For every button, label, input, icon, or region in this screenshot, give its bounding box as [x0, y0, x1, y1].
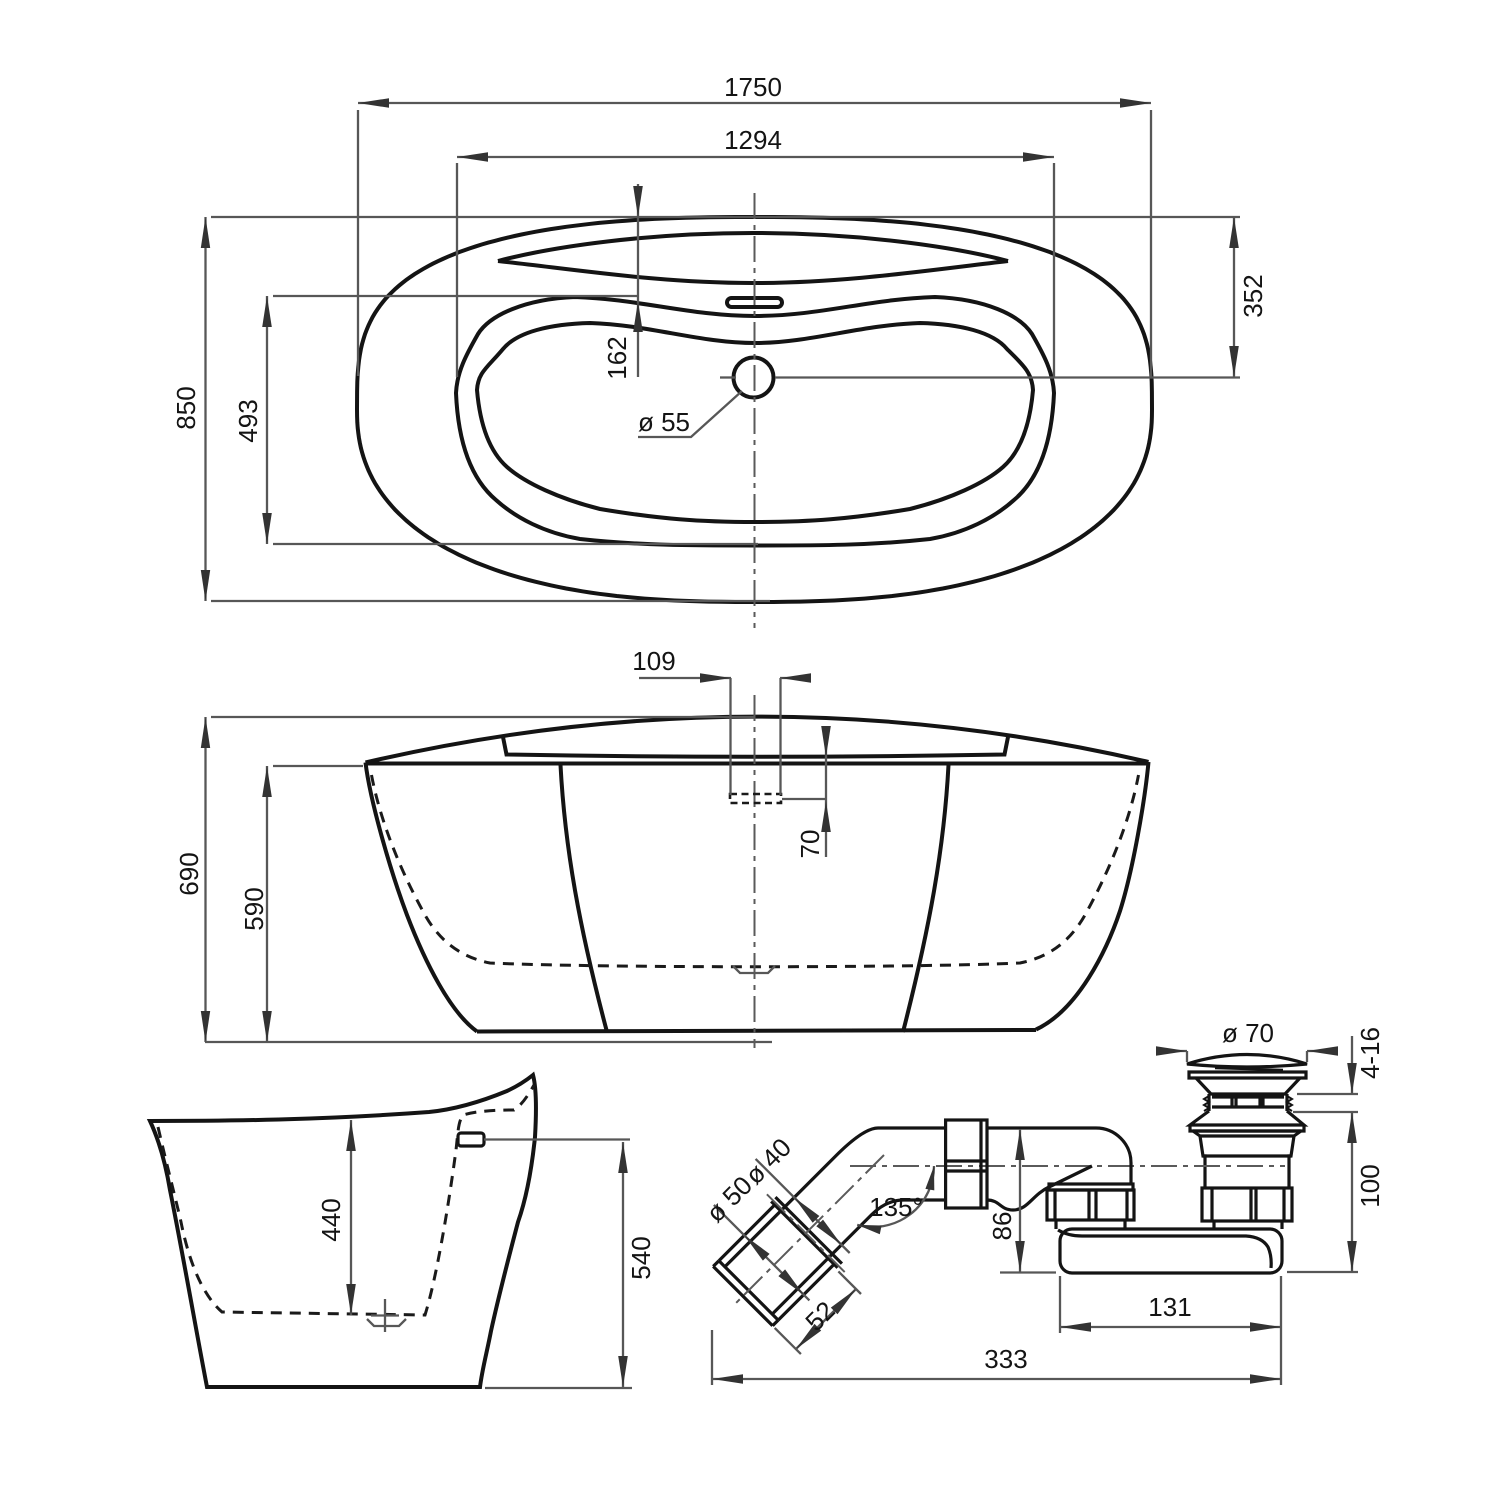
svg-text:1294: 1294 — [724, 125, 782, 155]
svg-text:850: 850 — [171, 386, 201, 429]
svg-text:540: 540 — [626, 1236, 656, 1279]
svg-text:70: 70 — [795, 830, 825, 859]
svg-text:109: 109 — [632, 646, 675, 676]
svg-text:1750: 1750 — [724, 72, 782, 102]
svg-text:690: 690 — [174, 852, 204, 895]
svg-text:352: 352 — [1238, 274, 1268, 317]
svg-text:86: 86 — [987, 1212, 1017, 1241]
svg-text:493: 493 — [233, 399, 263, 442]
svg-text:ø 70: ø 70 — [1222, 1018, 1274, 1048]
svg-text:131: 131 — [1148, 1292, 1191, 1322]
svg-text:590: 590 — [239, 887, 269, 930]
svg-text:4-16: 4-16 — [1355, 1027, 1385, 1079]
svg-text:162: 162 — [602, 336, 632, 379]
svg-text:135°: 135° — [869, 1192, 923, 1222]
svg-text:333: 333 — [984, 1344, 1027, 1374]
svg-text:ø 55: ø 55 — [638, 407, 690, 437]
svg-text:440: 440 — [316, 1198, 346, 1241]
svg-text:100: 100 — [1355, 1164, 1385, 1207]
